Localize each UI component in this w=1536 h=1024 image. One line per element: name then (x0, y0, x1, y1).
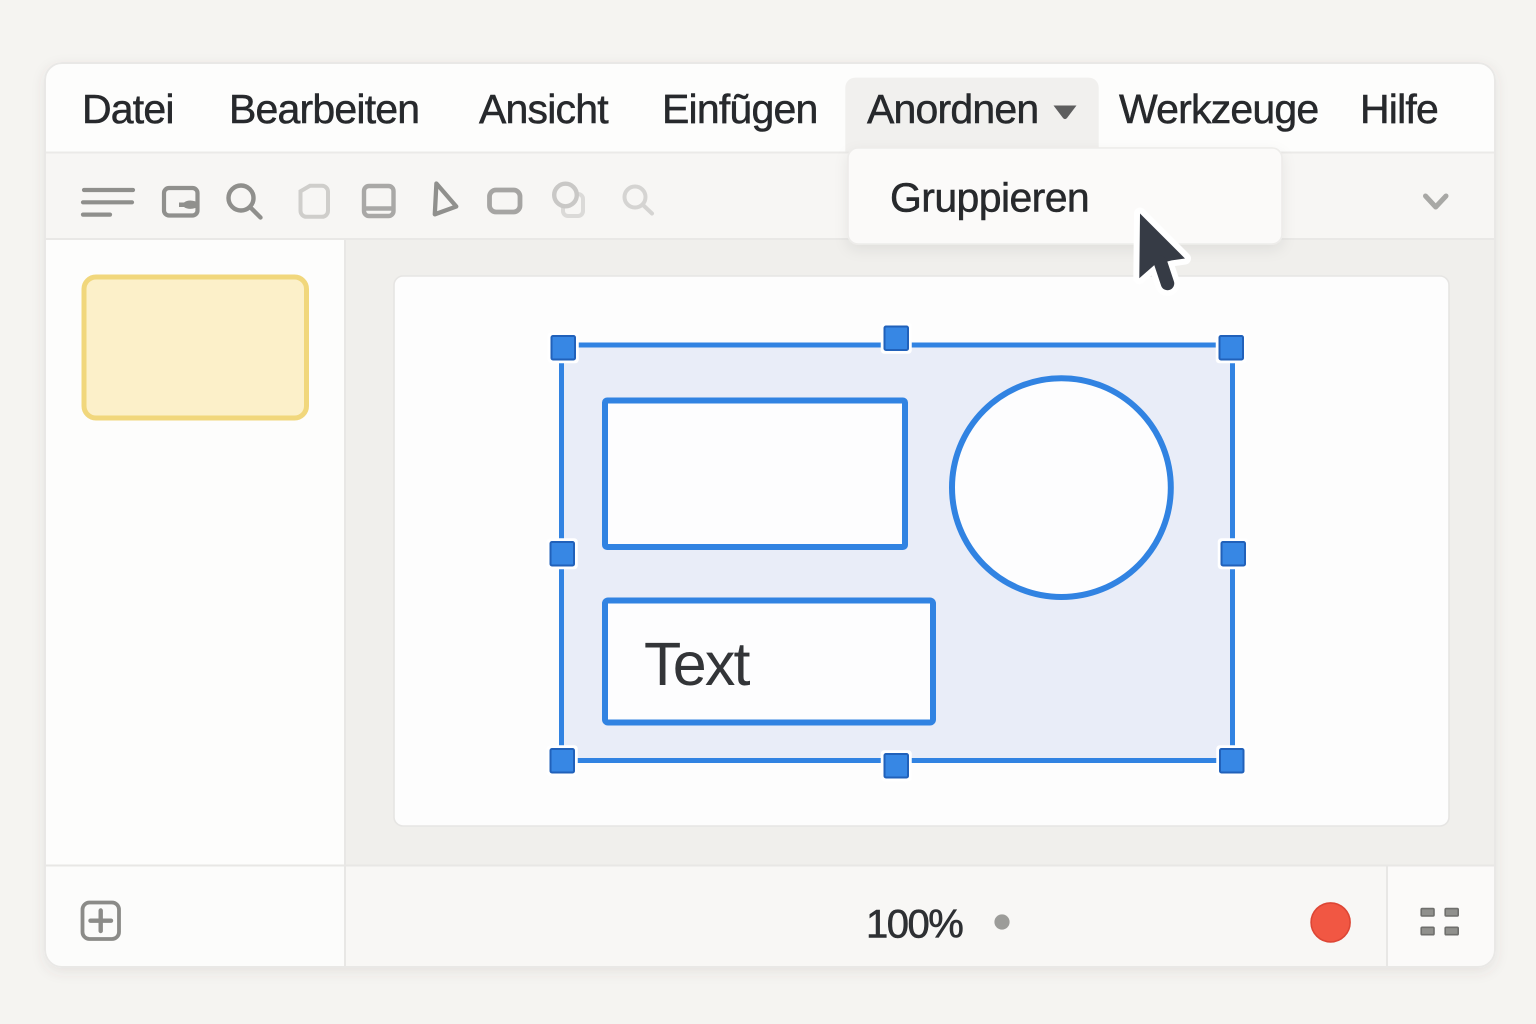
svg-text:Text: Text (644, 630, 751, 698)
svg-text:Einfũgen: Einfũgen (662, 86, 817, 132)
svg-text:Bearbeiten: Bearbeiten (229, 86, 419, 132)
svg-text:Gruppieren: Gruppieren (890, 175, 1089, 221)
svg-text:Hilfe: Hilfe (1360, 86, 1438, 132)
svg-text:100%: 100% (866, 903, 963, 947)
svg-text:Anordnen: Anordnen (867, 86, 1038, 132)
svg-text:Ansicht: Ansicht (479, 86, 609, 132)
svg-text:Werkzeuge: Werkzeuge (1119, 86, 1318, 132)
svg-text:Datei: Datei (82, 86, 174, 132)
